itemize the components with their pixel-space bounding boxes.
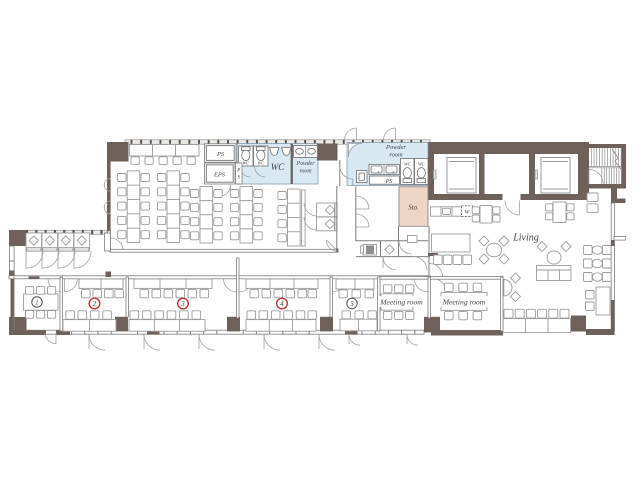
svg-text:2: 2 (93, 301, 97, 308)
svg-text:P: P (236, 169, 240, 174)
svg-text:Meeting room: Meeting room (442, 298, 486, 307)
svg-text:Meeting room: Meeting room (379, 298, 423, 307)
svg-text:WC: WC (418, 161, 425, 166)
svg-text:1: 1 (35, 300, 38, 307)
svg-text:PS: PS (385, 178, 393, 185)
svg-text:WC: WC (243, 160, 250, 165)
svg-text:Powder: Powder (295, 161, 315, 167)
svg-text:WC: WC (404, 161, 411, 166)
svg-text:EPS: EPS (213, 172, 226, 179)
svg-text:4: 4 (280, 301, 284, 308)
svg-text:3: 3 (180, 301, 185, 308)
svg-text:PS: PS (216, 151, 225, 158)
svg-text:5: 5 (350, 301, 354, 308)
svg-text:Powder: Powder (385, 144, 406, 151)
svg-text:WC: WC (271, 162, 285, 172)
svg-text:room: room (389, 152, 403, 159)
svg-text:WC: WC (258, 160, 265, 165)
svg-text:Sto.: Sto. (408, 205, 419, 212)
svg-text:Living: Living (512, 233, 539, 244)
svg-text:room: room (299, 169, 311, 175)
